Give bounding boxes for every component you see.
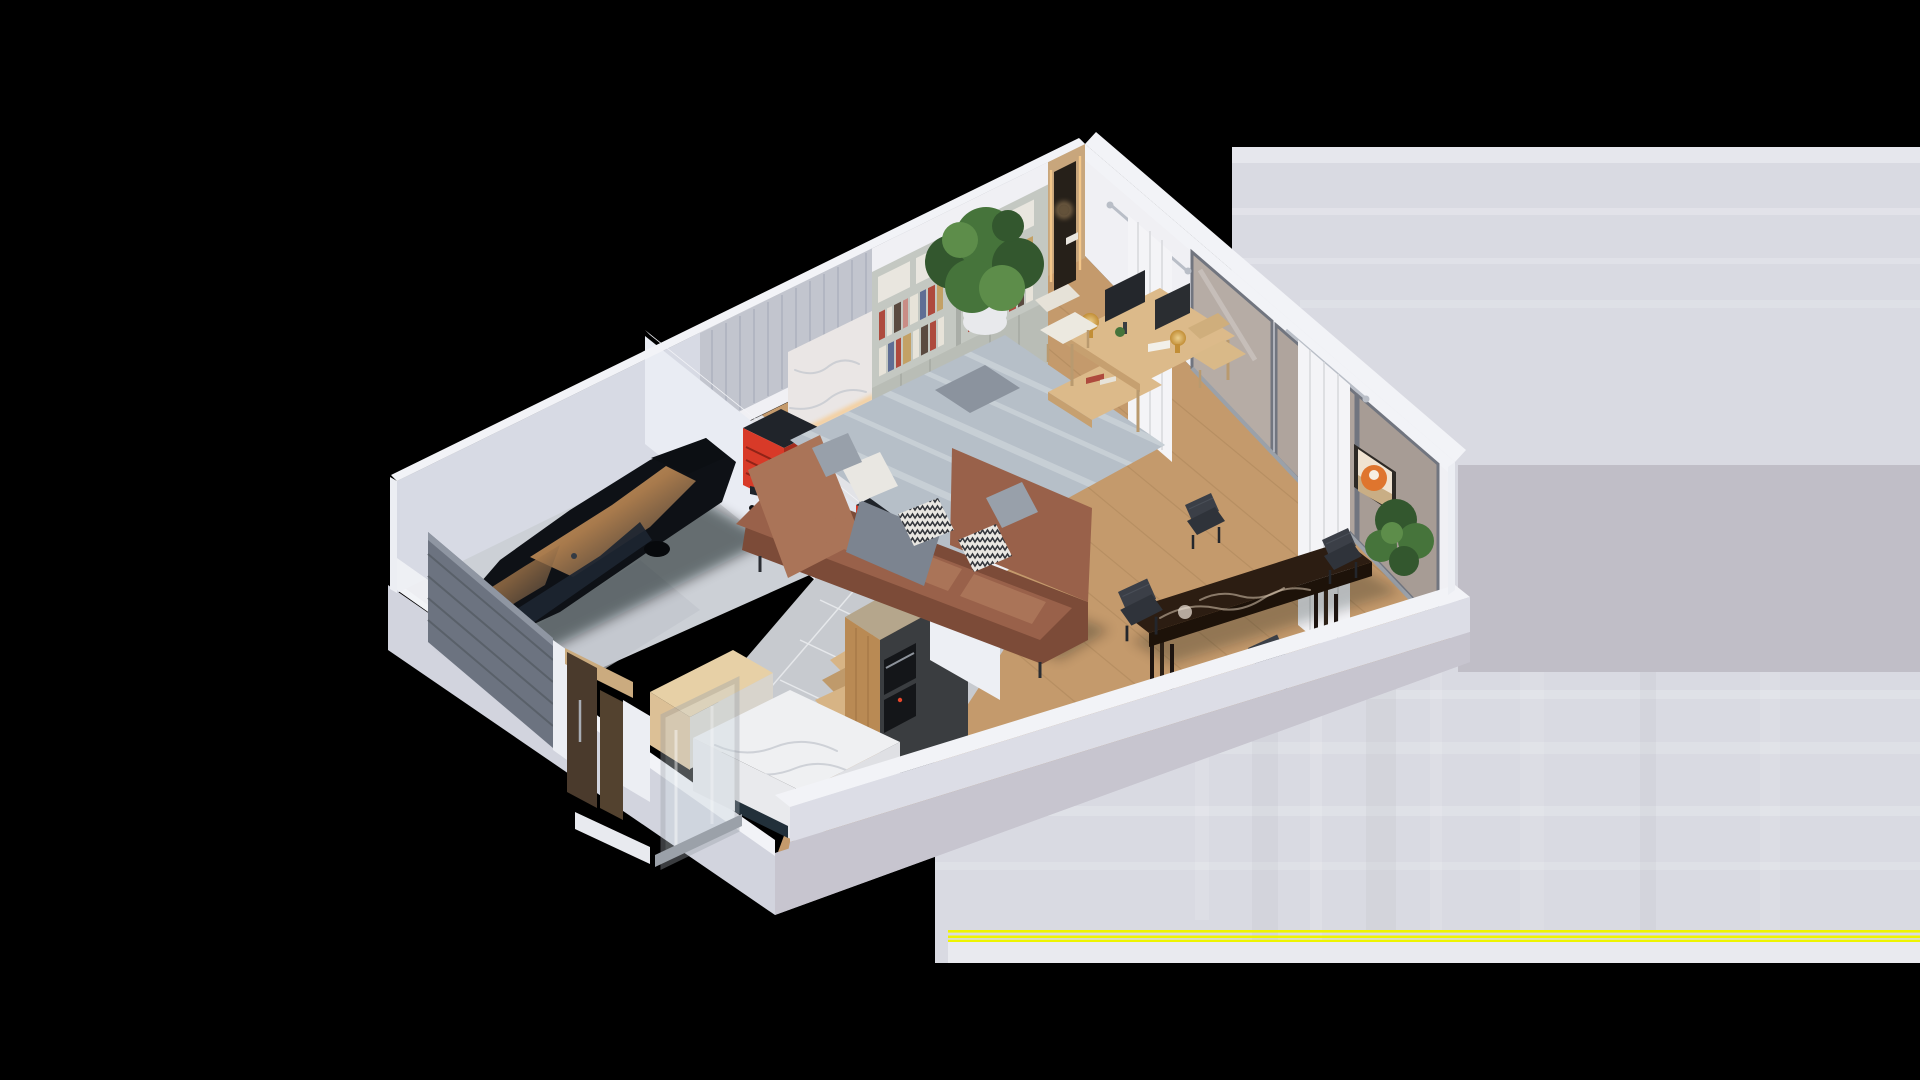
gold-mushroom-lamp-2 [1170,330,1186,346]
render-canvas [0,0,1920,1080]
backdrop-dark-band [1458,465,1920,672]
right-corner-cap [1448,462,1455,595]
backdrop-bottom-band [948,942,1920,963]
entry-side-panel [600,690,623,820]
entry-door [567,652,597,808]
oven-indicator-light [898,698,902,702]
yellow-scanline-artifacts [948,930,1920,942]
entry-door-nook [1054,161,1076,291]
desk-plant [1115,327,1125,337]
floorplan-render [0,0,1920,1080]
entry-nook [1048,144,1085,291]
